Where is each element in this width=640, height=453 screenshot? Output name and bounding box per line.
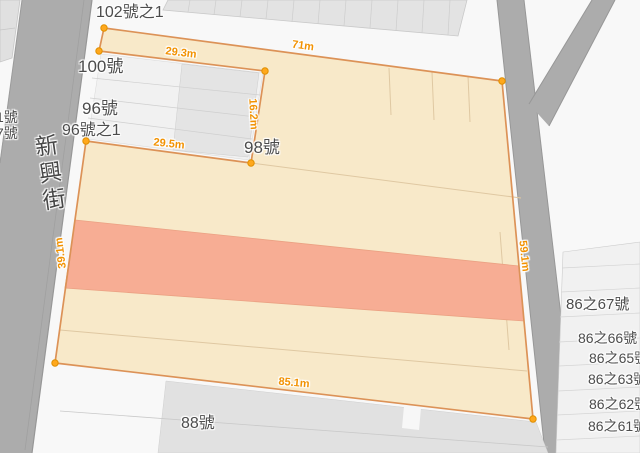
marker-layer <box>0 0 640 453</box>
vertex-marker[interactable] <box>83 138 89 144</box>
vertex-marker[interactable] <box>96 48 102 54</box>
vertex-marker[interactable] <box>101 25 107 31</box>
map-canvas[interactable]: 新興街 102號之1100號96號96號之198號88號86之67號86之66號… <box>0 0 640 453</box>
vertex-marker[interactable] <box>248 160 254 166</box>
vertex-marker[interactable] <box>52 360 58 366</box>
vertex-marker[interactable] <box>499 78 505 84</box>
vertex-marker[interactable] <box>262 68 268 74</box>
vertex-marker[interactable] <box>530 416 536 422</box>
